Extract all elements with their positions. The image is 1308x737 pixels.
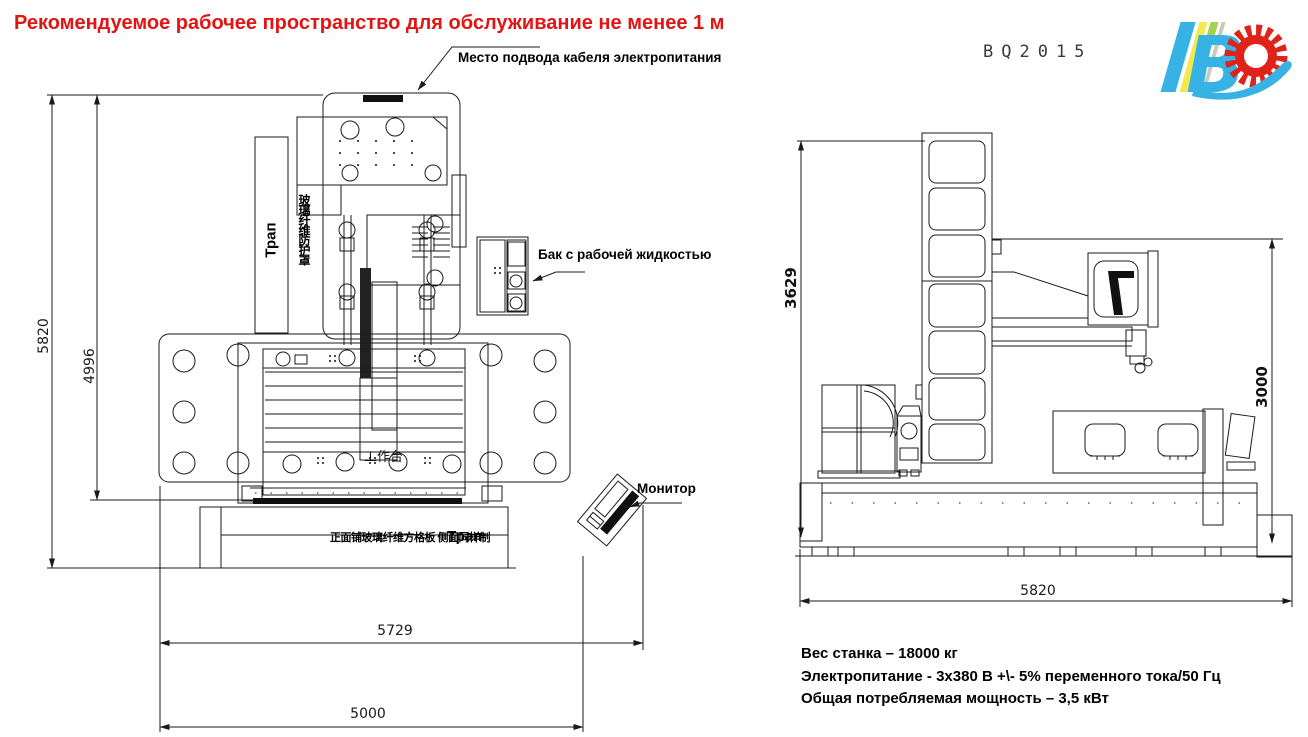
- tank-leader: [533, 272, 585, 281]
- leader-lines: [418, 47, 682, 507]
- drawing-sheet: B Рекомендуемое рабочее пространство для…: [0, 0, 1308, 737]
- front-view-drawing: [47, 93, 646, 568]
- machine-bed: [795, 483, 1292, 557]
- drawing-canvas: B: [0, 0, 1308, 737]
- spec-power-consumption: Общая потребляемая мощность – 3,5 кВт: [801, 688, 1221, 711]
- worktable-label: 工作台: [364, 446, 403, 465]
- cross-arm: [992, 327, 1152, 373]
- dim-side-gantry-height: 3000: [1253, 366, 1271, 408]
- base-note-label: 正面铺玻璃纤维方格板 侧面同样制: [330, 529, 490, 545]
- monitor-label: Монитор: [637, 481, 696, 496]
- operator-station: [897, 406, 921, 476]
- dim-front-base-width: 5000: [350, 706, 386, 722]
- bq-logo: B: [1160, 21, 1291, 111]
- page-title: Рекомендуемое рабочее пространство для о…: [14, 12, 724, 35]
- dim-front-workspace-width: 5729: [377, 623, 413, 639]
- head-enclosure: [1088, 251, 1158, 327]
- side-view-drawing: [795, 133, 1292, 557]
- monitor-leader: [630, 503, 682, 507]
- dim-front-machine-height: 4996: [82, 348, 98, 384]
- spec-weight: Вес станка – 18000 кг: [801, 643, 1221, 666]
- tank-label: Бак с рабочей жидкостью: [538, 247, 711, 262]
- dim-side-column-height: 3629: [782, 267, 800, 309]
- cable-entry-label: Место подвода кабеля электропитания: [458, 50, 721, 65]
- walkway-left-label: Трап: [263, 222, 280, 257]
- column: [916, 133, 1001, 463]
- side-dimensions: [797, 141, 1292, 607]
- spec-power-supply: Электропитание - 3х380 В +\- 5% переменн…: [801, 666, 1221, 689]
- ram-bar: [360, 268, 371, 378]
- coolant-tank: [477, 237, 528, 315]
- cable-entry-bar: [363, 95, 403, 102]
- dim-front-total-height: 5820: [36, 318, 52, 354]
- safety-fence: [818, 385, 900, 478]
- spec-block: Вес станка – 18000 кг Электропитание - 3…: [801, 643, 1221, 711]
- dim-side-length: 5820: [1020, 583, 1056, 599]
- model-number: BQ2015: [983, 42, 1092, 62]
- side-table-assembly: [1053, 409, 1255, 525]
- column-cover-label: 玻璃纤维防护罩: [296, 194, 313, 326]
